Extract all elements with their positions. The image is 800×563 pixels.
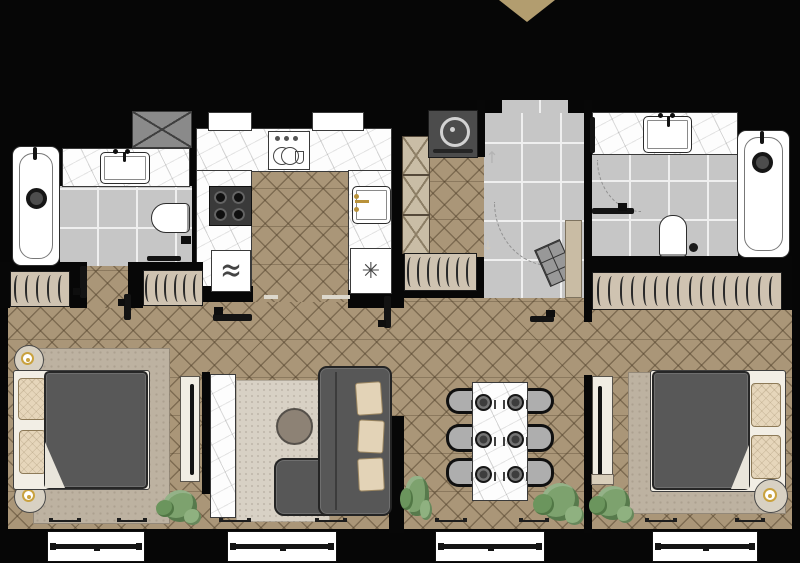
hanger-icon	[631, 276, 639, 306]
hanger-icon	[36, 275, 44, 303]
hanger-icon	[769, 276, 777, 306]
hanger-icon	[677, 276, 685, 306]
hanger-icon	[446, 257, 454, 287]
hanger-icon	[155, 274, 163, 302]
door-handle	[546, 310, 555, 317]
bathroom1-toilet	[151, 203, 190, 233]
dining-chair-right	[527, 458, 554, 487]
place-setting	[507, 466, 524, 483]
window-bedroom1	[47, 531, 145, 562]
bathroom2-door-leaf	[592, 208, 634, 214]
dining-chair-left	[446, 424, 473, 452]
bathroom1-faucet-spout	[123, 152, 126, 162]
window-living	[227, 531, 337, 562]
hanger-icon	[174, 274, 182, 302]
hanger-icon	[407, 257, 415, 287]
entry-arrow-down: ↓	[481, 236, 495, 256]
bathroom2-bathtub	[737, 130, 790, 258]
floor-threshold-mark	[322, 295, 350, 299]
door-handle	[214, 307, 223, 315]
hanger-icon	[164, 274, 172, 302]
floor-threshold-mark	[264, 295, 278, 299]
washer-drum-icon	[440, 117, 470, 147]
ceiling-light-icon: ✳	[362, 259, 380, 284]
washer-drum-center	[450, 127, 455, 132]
hanger-icon	[735, 276, 743, 306]
wall-segment	[592, 256, 792, 272]
bathroom1-faucet-handles	[113, 149, 130, 154]
floor-kitchen-wood	[252, 170, 348, 302]
place-setting	[475, 466, 492, 483]
kitchen-light-cabinet: ✳	[350, 248, 392, 294]
bathroom2-toilet	[659, 215, 687, 257]
bathroom2-shower-head-icon	[752, 152, 773, 173]
bathroom1-utility-shaft-box	[132, 111, 192, 148]
kitchen-upper-cabinet-right	[312, 112, 364, 131]
bathroom1-shower-head-icon	[26, 188, 47, 209]
curtain-rail-mark	[438, 520, 464, 522]
dining-chair-right	[527, 388, 554, 414]
living-plant	[405, 476, 429, 516]
hanger-icon	[427, 257, 435, 287]
bedroom2-tv	[598, 386, 602, 476]
microwave-waves-icon: ≈	[220, 250, 242, 292]
burner-icon	[232, 208, 245, 221]
sofa-cushion	[357, 419, 385, 453]
wall-segment	[0, 262, 10, 308]
hanger-icon	[654, 276, 662, 306]
dining-chair-left	[446, 458, 473, 487]
floor-plan-canvas: ≈ ✳ ↑ ↓	[0, 0, 800, 563]
duvet-fold	[45, 442, 65, 488]
kitchen-sink	[352, 186, 391, 224]
kitchen-cooktop	[209, 186, 252, 226]
drops-icon	[275, 136, 298, 141]
hanger-icon	[746, 276, 754, 306]
hanger-icon	[183, 274, 191, 302]
bathroom2-towel-rail	[590, 117, 595, 153]
bedroom2-lamp	[763, 488, 777, 502]
entry-closet-panel	[565, 220, 582, 298]
kitchen-upper-cabinet-left	[208, 112, 252, 131]
hanger-icon	[608, 276, 616, 306]
dining-plant	[541, 483, 579, 521]
living-coffee-table	[276, 408, 313, 445]
bedroom1-lamp-bottom	[22, 489, 35, 502]
bathroom2-faucet-spout	[667, 116, 670, 127]
hanger-icon	[620, 276, 628, 306]
living-marble-tv-wall	[210, 374, 236, 518]
bathroom1-toilet-paper-holder	[181, 236, 191, 244]
hanger-icon	[597, 276, 605, 306]
hanger-icon	[58, 275, 66, 303]
hanger-icon	[712, 276, 720, 306]
window-knob	[703, 544, 709, 551]
floor-hall-wood-strip	[428, 157, 484, 257]
hanger-icon	[14, 275, 22, 303]
bathroom1-tub-faucet	[33, 147, 37, 160]
window-bedroom2	[652, 531, 758, 562]
hanger-icon	[666, 276, 674, 306]
kitchen-microwave: ≈	[211, 250, 251, 292]
kitchen-faucet-handle	[354, 194, 359, 199]
sofa-cushion	[357, 457, 385, 491]
curtain-rail-mark	[522, 520, 546, 522]
wall-segment	[143, 262, 203, 270]
bedroom1-plant	[163, 490, 197, 522]
arrow-down-icon: ↓	[483, 239, 494, 254]
hanger-icon	[193, 274, 201, 302]
wardrobe-bedroom2-long	[592, 272, 782, 310]
door-handle	[118, 299, 125, 306]
arrow-up-icon: ↑	[485, 148, 498, 167]
bedroom1-pillow	[18, 378, 46, 420]
entry-arrow-up: ↑	[484, 146, 500, 168]
door-leaf-corridor-left	[124, 294, 131, 320]
window-knob	[488, 544, 494, 551]
place-setting	[507, 431, 524, 448]
bedroom1-duvet	[44, 371, 148, 489]
bedroom2-plant	[596, 486, 630, 520]
window-knob	[280, 544, 286, 551]
kitchen-tall-cabinets	[402, 136, 430, 254]
hanger-icon	[689, 276, 697, 306]
sofa-seat-line	[335, 372, 337, 510]
bedroom1-lamp-top	[21, 352, 34, 365]
dining-chair-right	[527, 424, 554, 452]
bathroom2-door-handle	[618, 203, 627, 211]
bedroom2-duvet	[652, 371, 750, 490]
door-leaf-bathroom1	[80, 266, 87, 298]
wardrobe-hall	[404, 253, 477, 291]
bedroom2-tv-panel	[592, 376, 613, 484]
bathroom1-towel-rail	[147, 256, 181, 261]
burner-icon	[214, 191, 227, 204]
duvet-fold	[731, 445, 749, 489]
tall-cabinet-cell	[402, 215, 430, 254]
bedroom2-tv-shelf	[591, 474, 614, 485]
curtain-rail-mark	[120, 520, 144, 522]
entrance-marker-triangle	[499, 0, 555, 22]
hanger-icon	[417, 257, 425, 287]
hanger-icon	[466, 257, 474, 287]
hanger-icon	[723, 276, 731, 306]
washer-control-panel	[433, 149, 473, 153]
dining-chair-left	[446, 388, 473, 414]
window-dining	[435, 531, 545, 562]
bedroom2-pillow	[751, 435, 781, 479]
tall-cabinet-cell	[402, 136, 430, 175]
burner-icon	[232, 191, 245, 204]
hanger-icon	[145, 274, 153, 302]
hanger-icon	[700, 276, 708, 306]
curtain-rail-mark	[738, 520, 762, 522]
wardrobe-bedroom1-left	[10, 271, 70, 307]
wall-segment	[782, 272, 792, 310]
hanger-icon	[437, 257, 445, 287]
curtain-rail-mark	[222, 520, 248, 522]
place-setting	[475, 431, 492, 448]
place-setting	[475, 394, 492, 411]
kitchen-dish-rack	[268, 131, 310, 170]
window-knob	[94, 544, 100, 551]
hanger-icon	[25, 275, 33, 303]
entry-washing-machine	[428, 110, 478, 158]
door-handle	[73, 288, 81, 295]
hanger-icon	[643, 276, 651, 306]
glass-icon	[295, 151, 304, 164]
hanger-icon	[47, 275, 55, 303]
curtain-rail-mark	[648, 520, 674, 522]
bathroom2-toilet-brush	[689, 243, 698, 252]
kitchen-faucet-handle	[354, 207, 359, 212]
bedroom1-tv	[190, 384, 194, 475]
kitchen-faucet-gold	[355, 200, 369, 203]
curtain-rail-mark	[52, 520, 78, 522]
sofa-cushion	[355, 381, 383, 416]
burner-icon	[214, 208, 227, 221]
hanger-icon	[456, 257, 464, 287]
bedroom2-pillow	[751, 383, 781, 427]
hanger-icon	[758, 276, 766, 306]
curtain-rail-mark	[318, 520, 344, 522]
tall-cabinet-cell	[402, 175, 430, 214]
wall-pier-bedroom1-living	[202, 372, 210, 494]
bedroom1-pillow	[19, 430, 46, 474]
place-setting	[507, 394, 524, 411]
door-leaf-kitchen	[213, 314, 252, 321]
bathroom2-tub-faucet	[760, 131, 764, 144]
door-handle	[378, 320, 386, 327]
wardrobe-bedroom1-right	[143, 270, 203, 306]
